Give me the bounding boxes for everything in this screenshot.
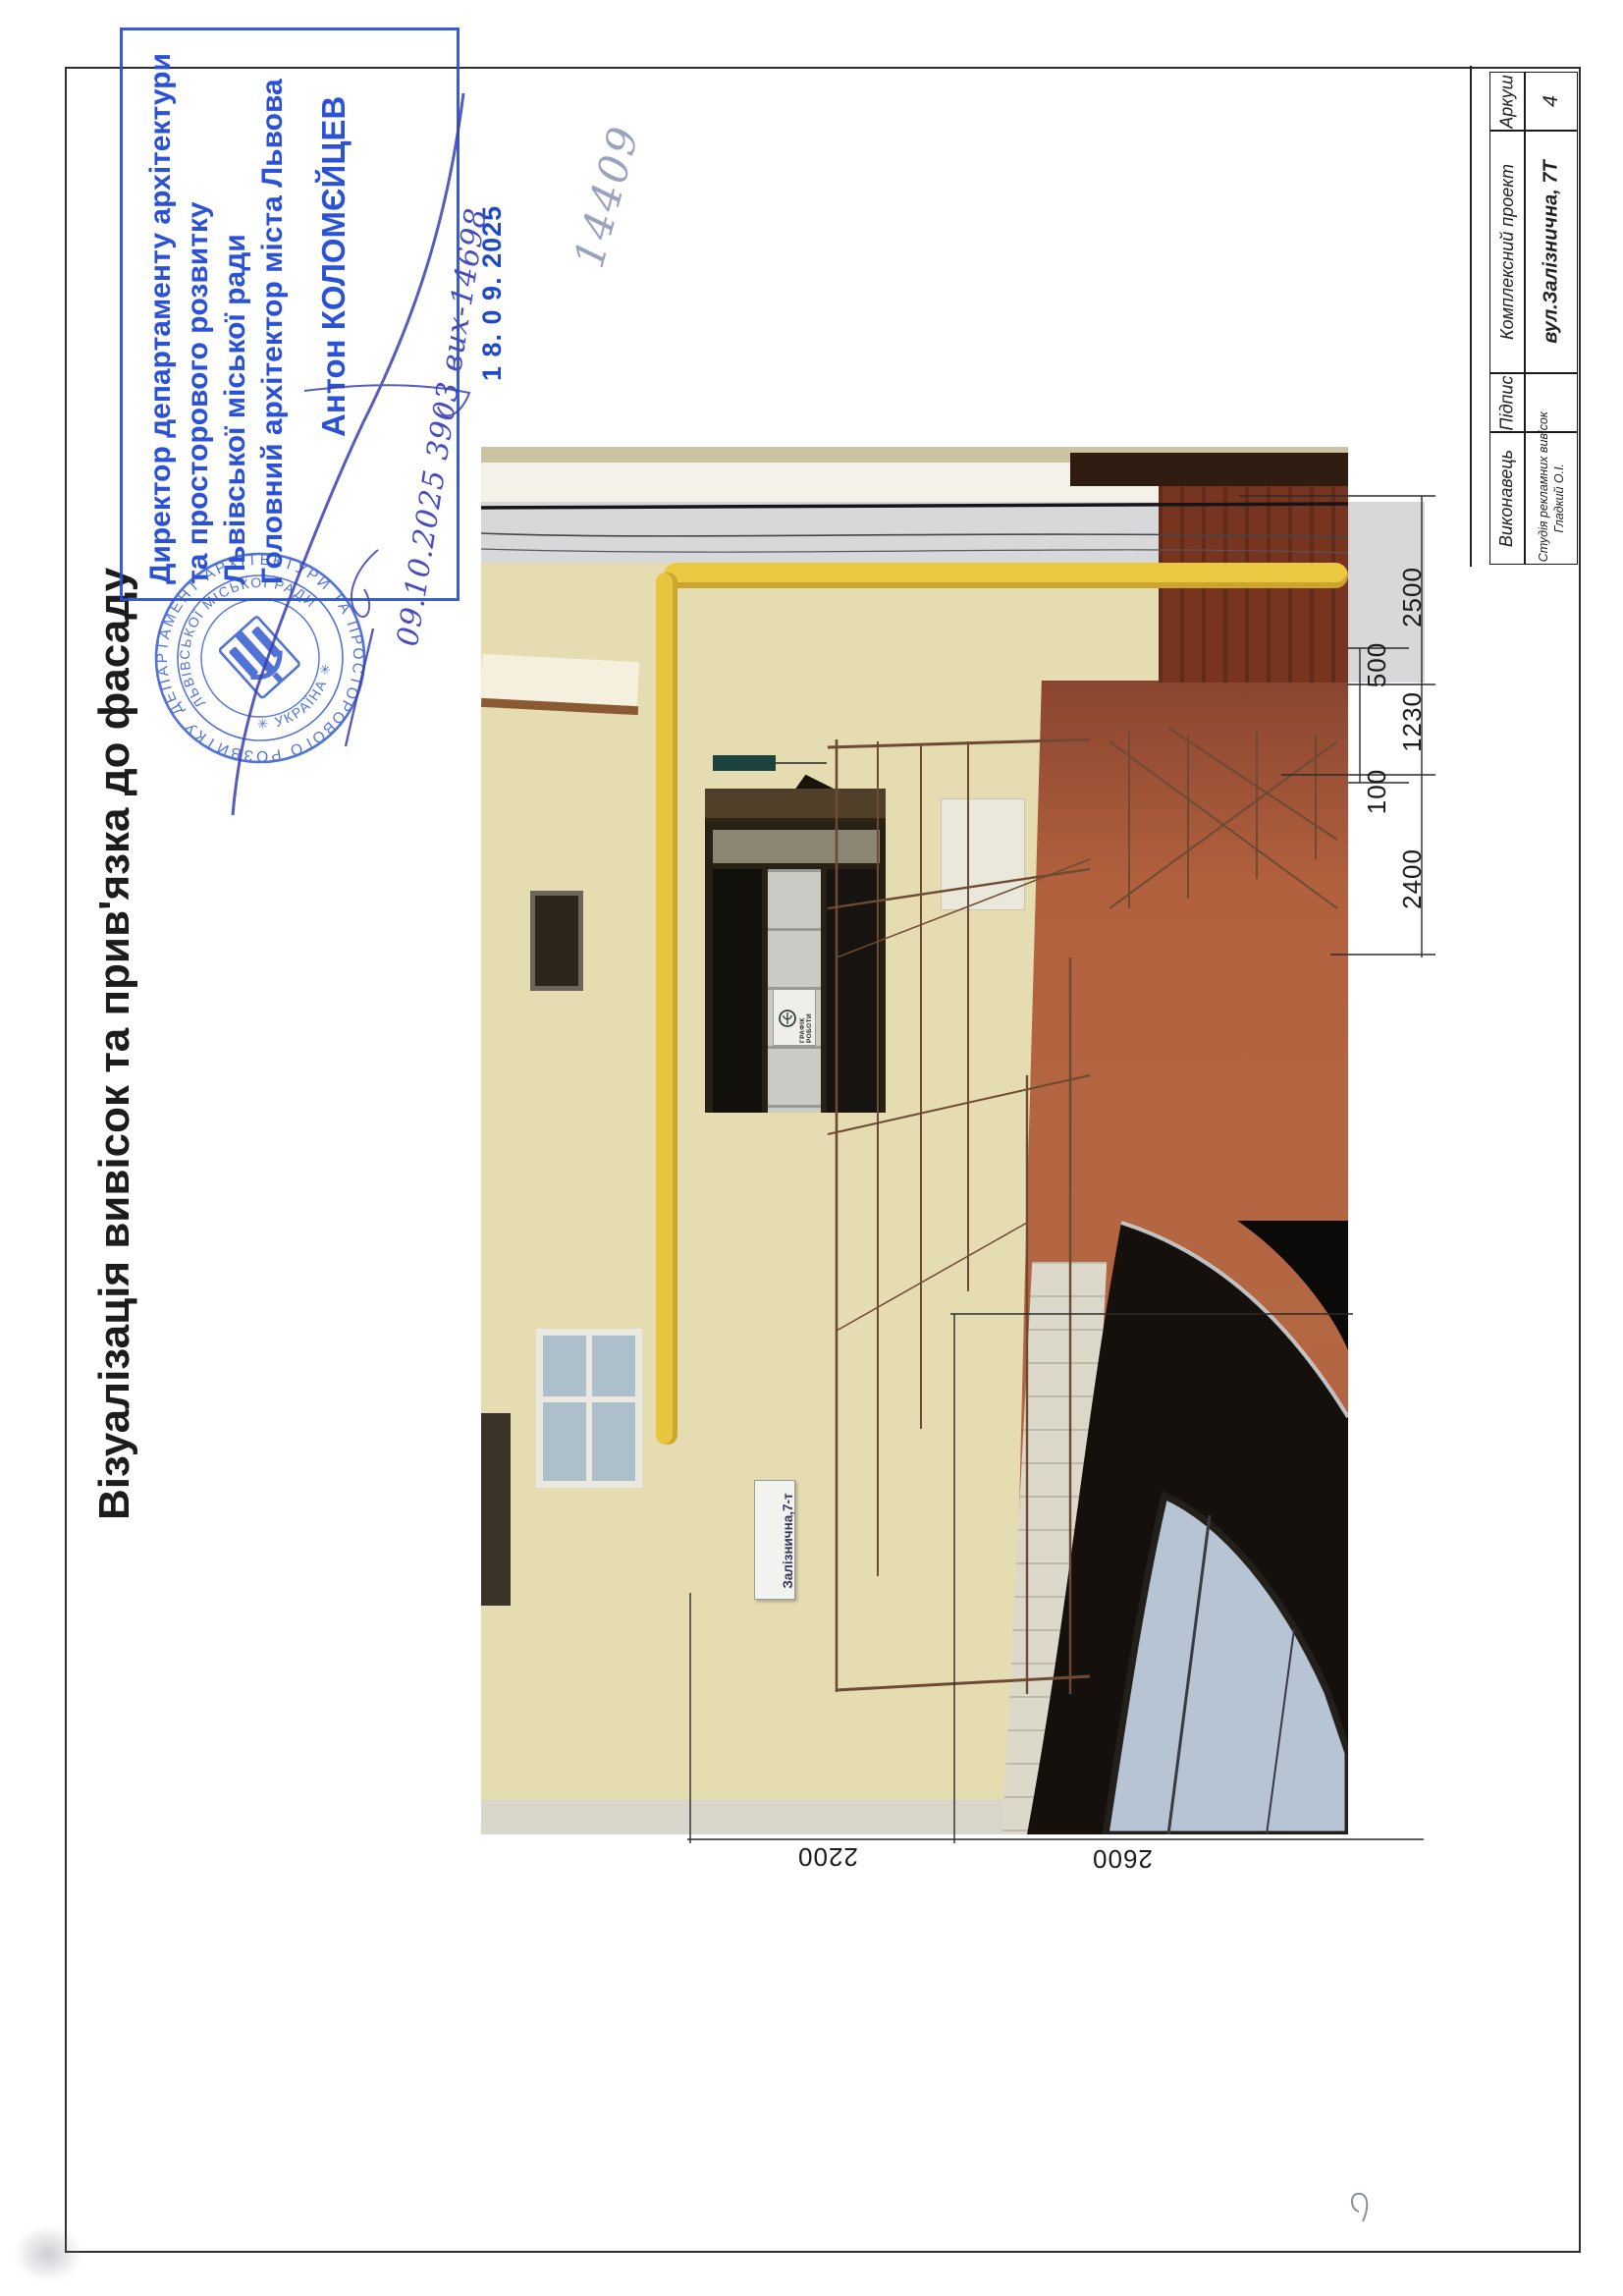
dim-label: 2400 <box>1397 848 1428 909</box>
dim-label: 100 <box>1362 769 1392 814</box>
approval-stamp-line: Головний архітектор міста Львова <box>254 53 292 584</box>
photo-downpipe <box>481 1413 511 1606</box>
approval-stamp-signer-name: Антон КОЛОМЄЙЦЕВ <box>315 53 352 437</box>
signature-label: Підпис <box>1497 375 1518 430</box>
project-label: Комплексний проект <box>1497 164 1518 340</box>
title-block-signature-value-cell <box>1525 373 1578 432</box>
dim-label: 500 <box>1362 642 1392 687</box>
dim-label: 2200 <box>797 1842 858 1872</box>
photo-storefront-glass-right <box>827 869 880 1113</box>
photo-teal-sign <box>713 755 776 771</box>
photo-storefront-glass-left <box>713 869 762 1113</box>
photo-gas-pipe-horizontal <box>664 563 1348 588</box>
title-block-sheet-value-cell: 4 <box>1525 72 1578 131</box>
photo-transom-band <box>713 830 880 863</box>
schedule-sign-label: ГРАФІК РОБОТИ <box>799 994 813 1043</box>
scanned-document-page: Візуалізація вивісок та прив'язка до фас… <box>0 0 1623 2296</box>
title-block-project-value-cell: вул.Залізнична, 7Т <box>1525 131 1578 373</box>
dim-bottom-2600: 2600 <box>1075 1844 1169 1874</box>
schedule-sign: ГРАФІК РОБОТИ <box>773 989 816 1046</box>
photo-small-window <box>530 891 583 991</box>
sheet-value: 4 <box>1540 95 1563 107</box>
sheet-label: Аркуш <box>1497 75 1518 128</box>
page-title-text: Візуалізація вивісок та прив'язка до фас… <box>90 568 139 1520</box>
address-plaque: Залізнична,7-т <box>754 1480 795 1600</box>
executor-value-line1: Студія рекламних вивісок <box>1536 435 1551 563</box>
title-block-signature-label-cell: Підпис <box>1489 373 1525 432</box>
approval-stamp-line: Директор департаменту архітектури <box>142 53 180 584</box>
window-mullion <box>586 1336 592 1481</box>
dim-right-1230: 1230 <box>1397 678 1427 766</box>
scan-smudge <box>14 2225 82 2282</box>
project-value: вул.Залізнична, 7Т <box>1541 160 1563 343</box>
dim-right-100: 100 <box>1362 747 1391 836</box>
photo-concrete-blocks <box>941 798 1025 910</box>
dim-right-2500: 2500 <box>1397 553 1427 641</box>
dim-label: 2600 <box>1092 1844 1153 1874</box>
photo-window <box>536 1329 642 1488</box>
facade-photo: ГРАФІК РОБОТИ Залізнична,7-т <box>481 447 1348 1834</box>
title-block-executor-value-cell: Студія рекламних вивісок Гладкий О.І. <box>1525 432 1578 565</box>
dim-label: 1230 <box>1397 691 1428 752</box>
photo-signboard <box>705 789 886 822</box>
executor-label: Виконавець <box>1497 450 1518 547</box>
dim-bottom-2200: 2200 <box>781 1842 875 1872</box>
dim-right-500: 500 <box>1362 621 1391 709</box>
photo-gas-pipe-vertical <box>656 573 677 1445</box>
schedule-sign-text: ГРАФІК РОБОТИ <box>799 994 813 1043</box>
approval-stamp: Директор департаменту архітектури та про… <box>120 27 460 601</box>
title-block-executor-label-cell: Виконавець <box>1489 432 1525 565</box>
title-block-project-label-cell: Комплексний проект <box>1489 131 1525 373</box>
approval-stamp-line: Львівської міської ради <box>217 53 254 584</box>
dim-right-2400: 2400 <box>1397 835 1427 923</box>
executor-value-line2: Гладкий О.І. <box>1551 435 1567 563</box>
address-plaque-textwrap: Залізнична,7-т <box>779 1485 796 1597</box>
title-block-outer-line <box>1470 66 1472 567</box>
window-transom <box>543 1396 635 1402</box>
address-plaque-text: Залізнична,7-т <box>781 1493 795 1588</box>
approval-stamp-line: та просторового розвитку <box>180 53 217 584</box>
page-title: Візуалізація вивісок та прив'язка до фас… <box>86 627 143 1520</box>
photo-dark-lintel <box>1070 453 1348 486</box>
title-block-sheet-label-cell: Аркуш <box>1489 72 1525 131</box>
dim-label: 2500 <box>1397 567 1428 628</box>
